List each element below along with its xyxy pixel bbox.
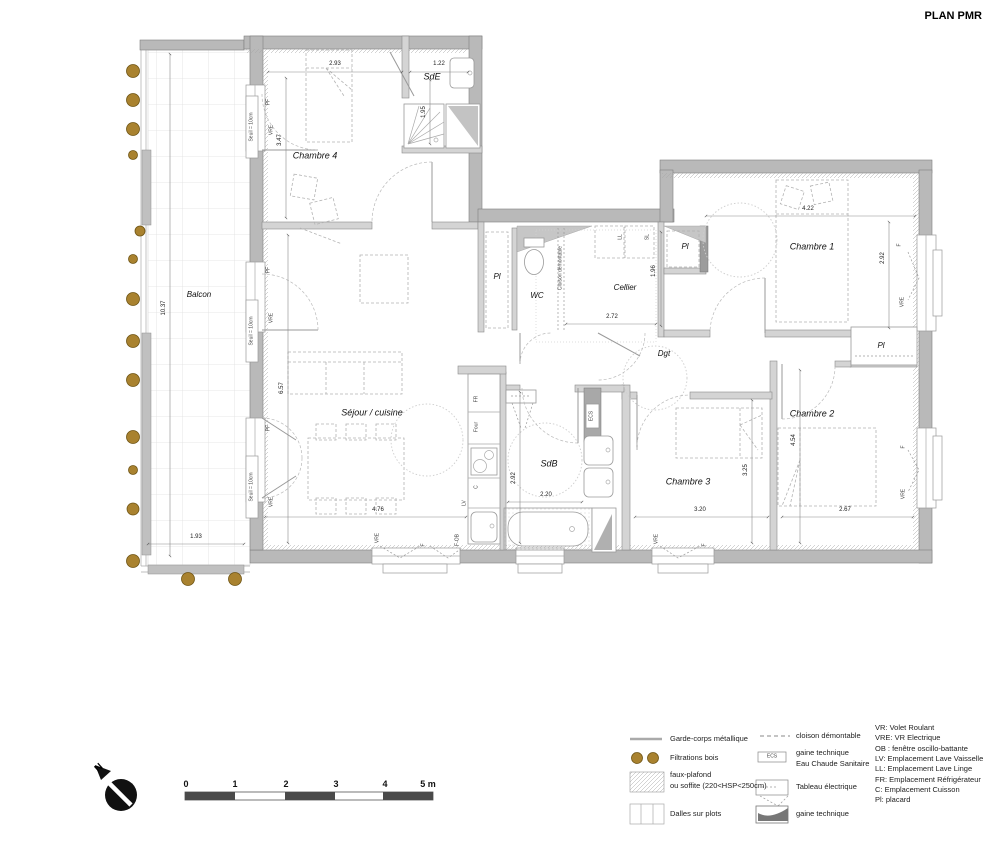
- dim-chambre2-width: 2.67: [839, 507, 851, 513]
- lv-label: LV: [463, 500, 468, 506]
- sde-sink: [450, 58, 474, 88]
- abbr-ll: LL: Emplacement Lave Linge: [875, 765, 972, 773]
- dim-sejour-height: 6.57: [279, 382, 285, 394]
- room-label-sdb: SdB: [540, 460, 557, 469]
- ll-label: LL: [619, 234, 624, 240]
- abbr-pl: Pl: placard: [875, 796, 910, 804]
- balustrade-panel: [142, 333, 151, 555]
- dim-chambre4-height: 3.47: [277, 134, 283, 146]
- abbr-vr: VR: Volet Roulant: [875, 724, 934, 732]
- balustrade-panel: [142, 150, 151, 225]
- scale-tick-5m: 5 m: [420, 779, 436, 789]
- legend-tableau: Tableau électrique: [796, 783, 857, 791]
- room-label-chambre3: Chambre 3: [666, 478, 711, 487]
- four-label: Four: [475, 422, 480, 432]
- abbr-c: C: Emplacement Cuisson: [875, 786, 960, 794]
- legend-dalles: Dalles sur plots: [670, 810, 721, 818]
- seuil-label: Seuil = 10cm: [250, 112, 255, 141]
- legend-gaine-ecs: gaine technique: [796, 749, 849, 757]
- room-label-balcon: Balcon: [187, 291, 211, 299]
- bed-chambre3: [676, 408, 762, 458]
- scale-tick-1: 1: [232, 779, 237, 789]
- sdb-sink: [584, 436, 613, 465]
- dim-chambre1-height: 2.92: [880, 252, 886, 264]
- legend-cloison: cloison démontable: [796, 732, 861, 740]
- pf-label: PF: [267, 267, 272, 273]
- sde-cabinet: [446, 104, 480, 148]
- armchair: [310, 197, 339, 224]
- bathtub: [504, 508, 592, 550]
- room-label-placard: Pl: [877, 342, 884, 350]
- legend-gaine-ecs-2: Eau Chaude Sanitaire: [796, 760, 869, 768]
- room-label-chambre4: Chambre 4: [293, 152, 338, 161]
- floorplan-drawing: [0, 0, 1000, 857]
- dim-balcon-height: 10.37: [161, 300, 167, 315]
- legend-faux-plafond-2: ou soffite (220<HSP<250cm): [670, 782, 767, 790]
- gaine-technique: [592, 508, 616, 552]
- legend-gaine: gaine technique: [796, 810, 849, 818]
- vre-label: VRE: [270, 125, 275, 135]
- c-label: C: [475, 485, 480, 489]
- scale-tick-2: 2: [283, 779, 288, 789]
- seuil-label: Seuil = 10cm: [250, 472, 255, 501]
- sdb-sink: [584, 468, 613, 497]
- gaine-technique-icon: [756, 806, 788, 823]
- tableau-electrique: [506, 390, 536, 428]
- room-label-chambre1: Chambre 1: [790, 243, 835, 252]
- armchair: [290, 174, 317, 200]
- dalles-sur-plots-icon: [630, 804, 664, 824]
- scale-tick-3: 3: [333, 779, 338, 789]
- room-label-placard: Pl: [681, 243, 688, 251]
- dim-chambre1-width: 4.22: [802, 206, 814, 212]
- f-ob-label: F-OB: [456, 534, 461, 546]
- legend-filtrations: Filtrations bois: [670, 754, 718, 762]
- filtrations-bois-icon: [632, 753, 659, 764]
- page-title: PLAN PMR: [925, 10, 982, 22]
- sl-label: SL: [646, 234, 651, 240]
- dim-chambre4-width: 2.93: [329, 61, 341, 67]
- faux-plafond-outline: [536, 230, 656, 342]
- vre-label: VRE: [376, 533, 381, 543]
- seuil-label: Seuil = 10cm: [250, 316, 255, 345]
- balustrade-panel: [148, 565, 244, 574]
- dim-sde-height: 1.95: [421, 106, 427, 118]
- vre-label: VRE: [270, 497, 275, 507]
- dim-sdb-height: 2.92: [511, 472, 517, 484]
- f-label: F: [422, 543, 427, 546]
- vre-label: VRE: [655, 534, 660, 544]
- dim-cellier-height: 1.96: [651, 265, 657, 277]
- room-label-dgt: Dgt: [658, 350, 670, 358]
- sofa: [288, 352, 402, 394]
- seche-linge-slot: [625, 226, 654, 258]
- vre-label: VRE: [270, 313, 275, 323]
- faux-plafond-icon: [630, 772, 664, 792]
- fr-label: FR: [475, 396, 480, 403]
- kitchen-sink: [471, 512, 497, 542]
- abbr-ob: OB : fenêtre oscillo-battante: [875, 745, 968, 753]
- room-label-sejour: Séjour / cuisine: [341, 409, 403, 418]
- furniture: [288, 50, 876, 514]
- legend-faux-plafond: faux-plafond: [670, 771, 711, 779]
- scale-bar: [185, 792, 433, 800]
- legend-ecs-box-label: ECS: [767, 755, 777, 760]
- dim-chambre2-height: 4.54: [791, 434, 797, 446]
- scale-tick-0: 0: [183, 779, 188, 789]
- soffit-wedge: [664, 226, 706, 243]
- scale-tick-4: 4: [382, 779, 387, 789]
- room-label-wc: WC: [530, 292, 543, 300]
- floor-plan-page: PLAN PMR Balcon Chambre 4 SdE WC Cellier…: [0, 0, 1000, 857]
- f-label: F: [898, 243, 903, 246]
- f-label: F: [902, 445, 907, 448]
- dim-balcon-width: 1.93: [190, 534, 202, 540]
- abbr-fr: FR: Emplacement Réfrigérateur: [875, 776, 981, 784]
- f-label: F: [703, 543, 708, 546]
- dim-sdb-width: 2.20: [540, 492, 552, 498]
- legend-garde-corps: Garde-corps métallique: [670, 735, 748, 743]
- pf-label: PF: [267, 425, 272, 431]
- dim-chambre3-width: 3.20: [694, 507, 706, 513]
- room-label-placard: Pl: [493, 273, 500, 281]
- room-label-cellier: Cellier: [614, 284, 637, 292]
- dim-sejour-width: 4.76: [372, 507, 384, 513]
- balcony-area: [127, 50, 251, 586]
- abbr-vre: VRE: VR Electrique: [875, 734, 940, 742]
- vre-label: VRE: [901, 297, 906, 307]
- dining-table: [308, 424, 404, 514]
- room-label-sde: SdE: [423, 73, 440, 82]
- lave-linge-slot: [595, 226, 624, 258]
- coffee-table: [360, 255, 408, 303]
- toilet: [524, 238, 544, 275]
- dim-cellier-width: 2.72: [606, 314, 618, 320]
- cloison-demontable-label: Cloison démontable: [559, 246, 564, 290]
- vre-label: VRE: [902, 489, 907, 499]
- pf-label: PF: [267, 99, 272, 105]
- room-label-chambre2: Chambre 2: [790, 410, 835, 419]
- abbr-lv: LV: Emplacement Lave Vaisselle: [875, 755, 983, 763]
- ecs-label: ECS: [590, 411, 595, 421]
- dim-chambre3-height: 3.25: [743, 464, 749, 476]
- dim-sde-width: 1.22: [433, 61, 445, 67]
